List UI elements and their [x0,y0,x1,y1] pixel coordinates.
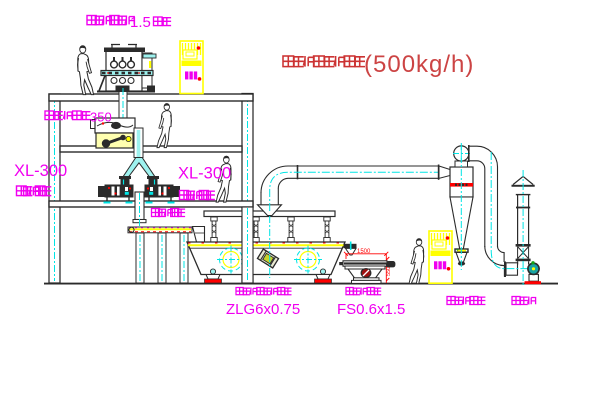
svg-text:(500kg/h): (500kg/h) [364,51,474,78]
svg-text:1500: 1500 [357,249,371,255]
svg-text:FS0.6x1.5: FS0.6x1.5 [337,301,405,318]
svg-text:1.5: 1.5 [130,14,151,31]
svg-text:350: 350 [90,110,112,125]
svg-text:ZLG6x0.75: ZLG6x0.75 [226,301,300,318]
svg-text:XL-300: XL-300 [178,165,231,183]
svg-text:550: 550 [386,267,392,276]
svg-text:XL-300: XL-300 [14,162,67,180]
